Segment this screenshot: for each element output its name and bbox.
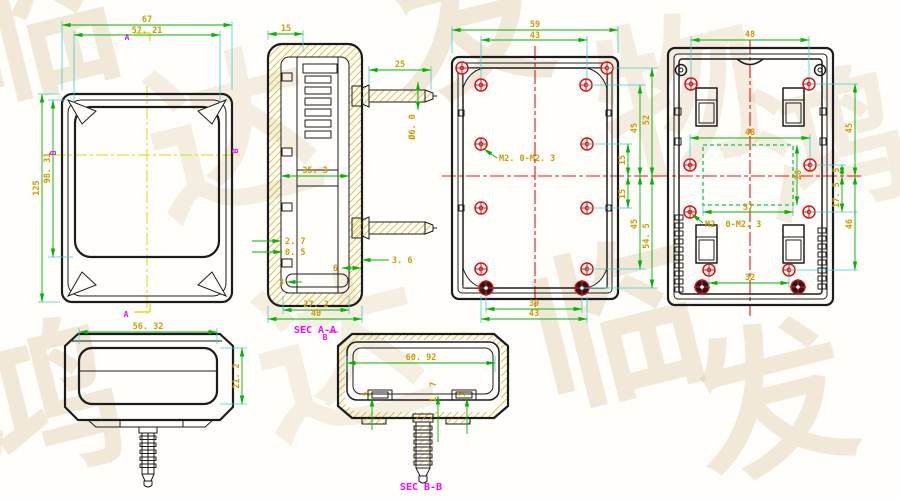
dim-bottom-outer: 43 (529, 309, 539, 319)
section-aa-view: 15 25 Ø6. 0 35. 3 2. 7 0. 5 3. 6 6 3 27.… (252, 24, 437, 336)
callout-leader (692, 214, 703, 223)
bottom-roller (286, 274, 348, 287)
rib-comb (303, 64, 337, 138)
dim-inner-width: 35. 3 (302, 166, 328, 176)
corner-ear (676, 65, 687, 76)
thread-callout: M2. 0-M2. 3 (499, 154, 555, 164)
section-marker-b-right: B (231, 148, 240, 153)
dim-width: 56. 32 (133, 322, 164, 332)
corner-facet (68, 100, 96, 124)
section-a-cut-mark (134, 304, 150, 312)
dim-outer-width: 59 (530, 20, 540, 30)
dim-inner-height: 98. 31 (43, 153, 53, 184)
dim-height: 21. 2 (232, 363, 242, 389)
dim-inner-width: 57. 21 (132, 26, 163, 36)
foot-tab (446, 418, 470, 424)
mount-screw-upper (352, 85, 437, 107)
bottom-case-view: M2. 0-M2. 3 48 48 37 28 5 17. 5 45 46 32 (655, 30, 864, 316)
dim-step: 3 (279, 278, 284, 288)
screw-boss-dark (694, 279, 710, 295)
foot-tab (362, 418, 386, 424)
dim-center-up: 15 (618, 155, 628, 165)
dim-right-upper: 45 (845, 123, 855, 133)
callout-leader (484, 149, 497, 158)
top-case-view: M2. 0-M2. 3 59 43 15 15 45 45 52 54. 5 3… (442, 20, 660, 323)
dim-bottom-span: 32 (745, 273, 755, 283)
section-aa-label: SEC A-A (294, 325, 336, 336)
section-marker-b: B (323, 333, 328, 342)
front-view: A A B B 67 57. 21 125 98. 31 (32, 15, 240, 319)
dim-window-height: 28 (794, 170, 804, 180)
screw-boss (475, 79, 487, 91)
corner-ear (815, 65, 826, 76)
thread-callout: M2. 0-M2. 3 (705, 220, 761, 230)
dim-outer-width: 67 (142, 15, 152, 25)
cad-drawing-canvas: 临 达 发 物 鸿 达 临 鸿 发 (0, 0, 900, 500)
anchor-screw-section (413, 414, 433, 483)
dim-right-clip: 3 (458, 391, 468, 396)
pcb-window-dashed (703, 145, 793, 205)
dim-inner-width: 60. 92 (406, 353, 437, 363)
body-outline (338, 334, 508, 418)
dim-center-down: 15 (618, 189, 628, 199)
dim-screw-diameter: Ø6. 0 (407, 114, 418, 141)
screw-boss (456, 62, 468, 74)
dim-right-mid: 17. 5 (832, 182, 842, 208)
dim-left-clip: 3 (363, 391, 373, 396)
dim-wall-thickness: 2. 7 (285, 237, 305, 247)
screw-boss (475, 138, 487, 150)
screw-boss-dark (478, 280, 494, 296)
anchor-screw (139, 427, 157, 487)
screw-boss (475, 202, 487, 214)
dim-right-small: 5 (832, 167, 842, 172)
dim-right-lower: 46 (845, 219, 855, 229)
side-view: 56. 32 21. 2 (65, 322, 247, 487)
screw-boss (475, 263, 487, 275)
dim-right-lower-outer: 54. 5 (642, 223, 652, 249)
section-bb-view: 60. 92 3 1. 7 3 B SEC B-B (323, 332, 508, 493)
dim-boss-span-top: 43 (530, 31, 540, 41)
dim-bottom-inner: 39 (529, 299, 539, 309)
dim-right-upper-mid: 45 (630, 123, 640, 133)
section-marker-a-bottom: A (124, 310, 129, 319)
window-outline (79, 348, 217, 404)
dim-gap: 0. 5 (285, 248, 305, 258)
screw-boss-dark (790, 279, 806, 295)
corner-facet (198, 272, 226, 296)
dim-bottom-outer: 40 (311, 309, 321, 319)
corner-facet (68, 272, 96, 296)
screw-boss (684, 159, 696, 171)
section-bb-label: SEC B-B (400, 482, 442, 493)
dim-mid-span: 48 (745, 128, 755, 138)
dim-right-lower-mid: 45 (630, 219, 640, 229)
dim-right-upper-outer: 52 (642, 115, 652, 125)
dim-top-wall: 15 (281, 24, 291, 34)
screw-boss (685, 78, 697, 90)
corner-facet (198, 100, 226, 124)
dim-outer-height: 125 (32, 180, 42, 195)
dim-rib: 6 (333, 264, 338, 274)
drawing-sheet: A A B B 67 57. 21 125 98. 31 (0, 0, 900, 500)
mount-screw-lower (352, 217, 437, 239)
section-marker-a-top: A (125, 33, 130, 42)
dim-top-span: 48 (745, 30, 755, 40)
wall-hatch (338, 334, 508, 418)
screw-boss (703, 264, 715, 276)
dim-center: 1. 7 (429, 382, 439, 402)
dim-window-width: 37 (743, 203, 753, 213)
dim-boss-offset: 3. 6 (392, 256, 412, 266)
dim-screw-length: 25 (395, 60, 405, 70)
